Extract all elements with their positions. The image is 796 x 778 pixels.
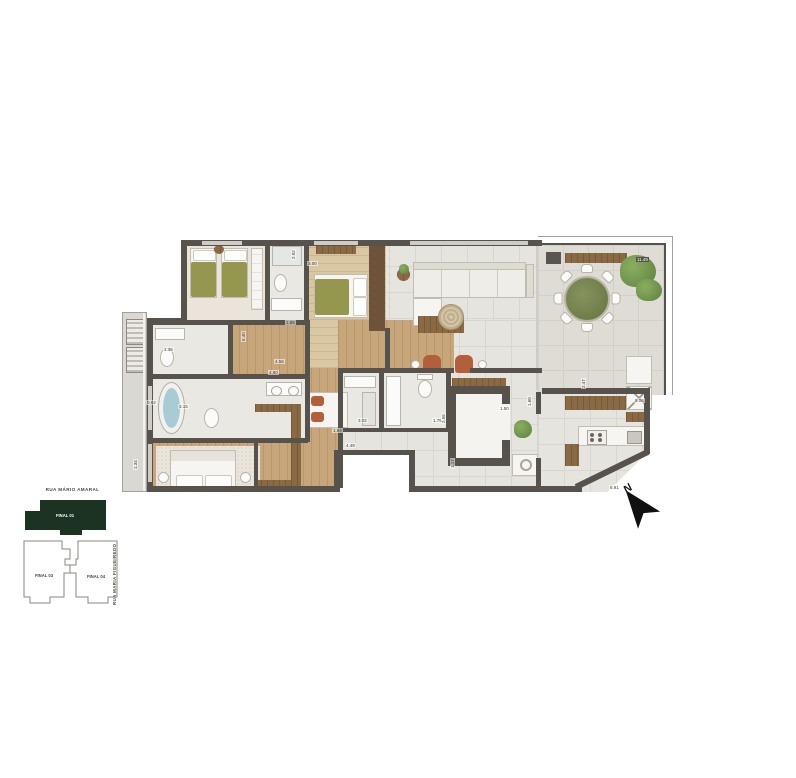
- north-arrow-icon: [610, 476, 666, 534]
- wall: [265, 244, 270, 320]
- dining-chair: [581, 264, 593, 273]
- pouf-1: [158, 472, 169, 483]
- wall: [151, 374, 308, 379]
- apartment-floorplan: [118, 236, 674, 494]
- twin-wardrobe: [251, 248, 263, 310]
- desk-cushion-2: [311, 412, 324, 422]
- dining-chair: [612, 293, 621, 305]
- keyplan: RUA MÁRIO AMARAL FINAL 01 FINAL 03 FINAL…: [20, 485, 130, 610]
- shower: [272, 246, 302, 266]
- elevator-shelf: [452, 378, 506, 386]
- wall: [151, 438, 308, 443]
- bath2-vanity: [155, 328, 185, 340]
- laundry-counter: [344, 376, 376, 388]
- elevator: [448, 386, 510, 466]
- tv-wardrobe: [369, 245, 385, 331]
- fridge: [626, 356, 652, 384]
- washer: [512, 454, 538, 476]
- street-label-right: RUA MARIA FIGUEIREDO: [112, 533, 117, 605]
- wall: [379, 372, 384, 430]
- bath2-toilet: [160, 348, 174, 367]
- kitchen-island: [578, 426, 650, 446]
- unit-04-shape: [70, 541, 117, 603]
- wall: [305, 320, 310, 442]
- kitchen-low-cabinet: [565, 444, 579, 466]
- floorplan-sheet: 1.363.150.821.346.402.923.001.854.564.80…: [0, 0, 796, 778]
- wall: [147, 486, 338, 492]
- side-balcony: [122, 312, 147, 492]
- ac-unit-2: [126, 347, 144, 373]
- unit-03-label: FINAL 03: [26, 573, 62, 578]
- window: [148, 386, 152, 430]
- single-bed-2: [221, 248, 248, 298]
- wall: [304, 244, 309, 320]
- wall: [254, 442, 258, 488]
- unit-04-label: FINAL 04: [78, 574, 114, 579]
- single-bed-1: [190, 248, 217, 298]
- window: [314, 241, 358, 245]
- wall: [228, 325, 233, 378]
- window: [410, 241, 528, 245]
- master-bed: [314, 274, 368, 318]
- desk-cushion-1: [311, 396, 324, 406]
- kitchen-counter: [565, 396, 629, 410]
- bathtub: [158, 382, 185, 434]
- dining-chair: [554, 293, 563, 305]
- laundry-cabinet: [362, 392, 376, 426]
- wall: [338, 368, 454, 373]
- sink-counter: [271, 298, 302, 311]
- nightstand: [214, 245, 224, 254]
- closet-shelf-right: [291, 404, 301, 488]
- window: [202, 241, 242, 245]
- hall-plant: [514, 420, 532, 438]
- window: [148, 444, 152, 482]
- wall: [644, 392, 650, 454]
- wall: [340, 428, 450, 432]
- plant-pot: [399, 264, 409, 274]
- dresser: [316, 246, 356, 254]
- sofa-arm: [526, 264, 534, 298]
- wall: [536, 458, 541, 492]
- terrace-cabinet: [546, 252, 561, 264]
- wall: [536, 392, 541, 414]
- unit-01-label: FINAL 01: [35, 513, 95, 518]
- kitchen-sink: [627, 431, 642, 444]
- lavabo-tank: [417, 374, 433, 380]
- wall: [446, 372, 451, 430]
- lavabo-counter: [386, 376, 401, 426]
- master-vanity: [266, 382, 302, 396]
- wall: [470, 368, 542, 373]
- cooktop: [587, 430, 607, 445]
- sofa-seats: [413, 269, 526, 298]
- wall: [542, 388, 650, 394]
- building-notch: [340, 455, 409, 492]
- lavabo-toilet: [418, 380, 432, 398]
- toilet: [274, 274, 287, 292]
- terrace: [538, 236, 673, 395]
- wall: [181, 240, 187, 324]
- wall: [385, 328, 390, 372]
- wall: [409, 486, 582, 492]
- ac-unit-1: [126, 319, 144, 345]
- terrace-bench: [565, 253, 627, 263]
- corner-plant-small: [636, 279, 662, 301]
- pouf-2: [240, 472, 251, 483]
- master-toilet: [204, 408, 219, 428]
- ottoman: [438, 304, 464, 330]
- unit-03-shape: [24, 541, 70, 603]
- dining-chair: [581, 323, 593, 332]
- keyplan-drawing: [20, 485, 125, 610]
